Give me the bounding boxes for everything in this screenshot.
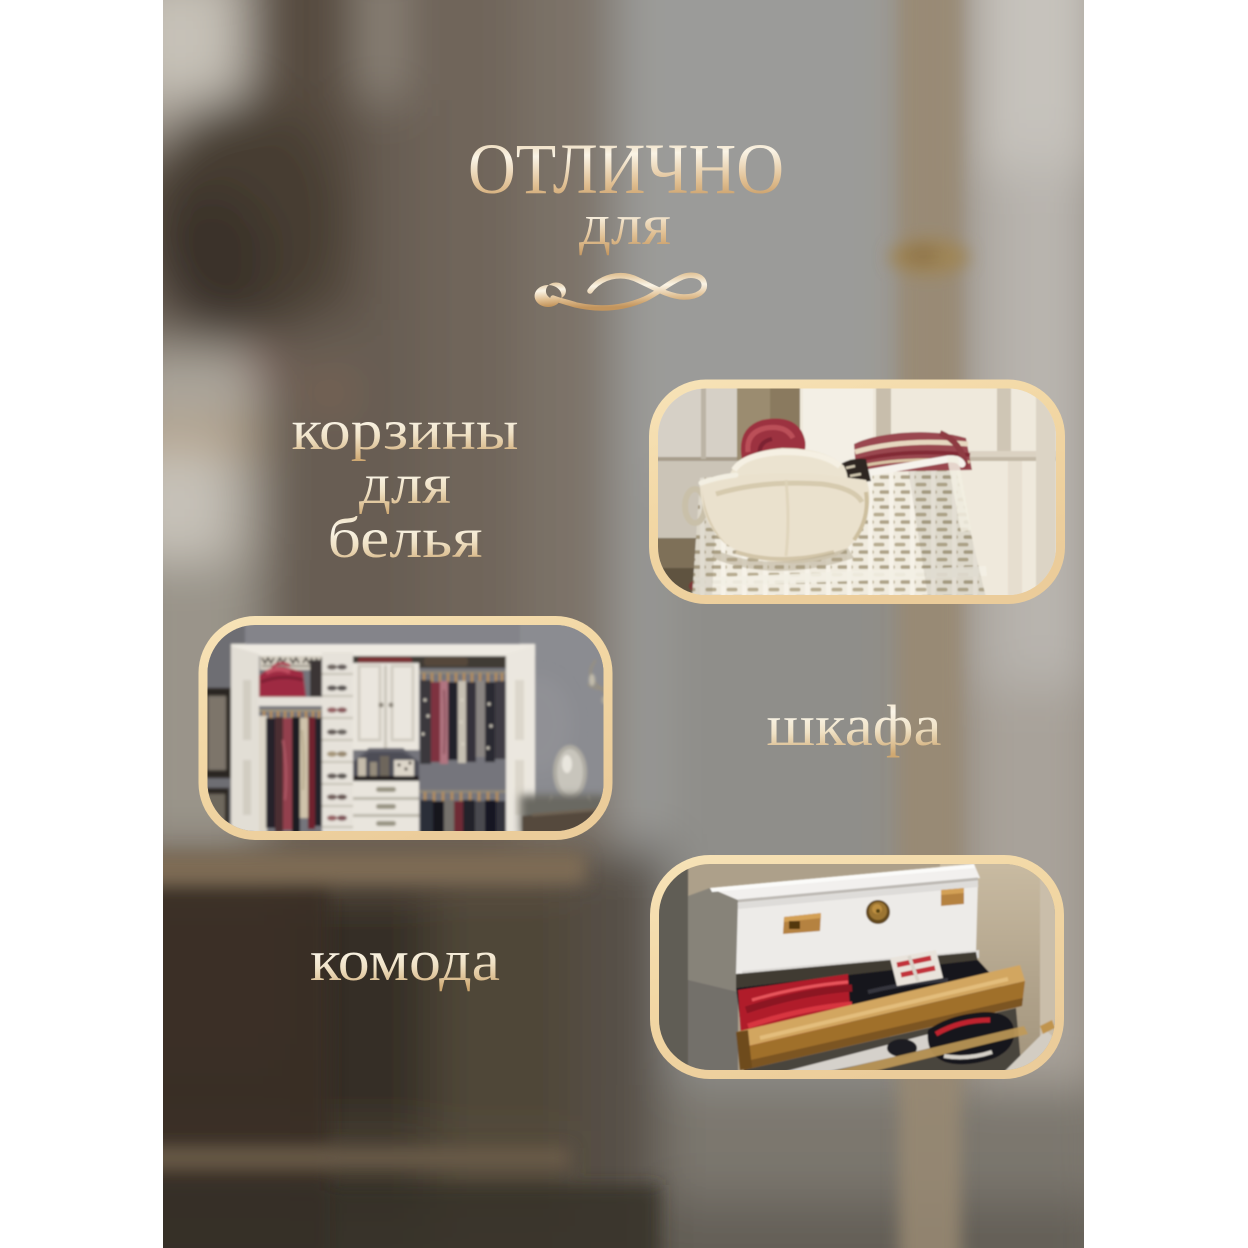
svg-text:белья: белья xyxy=(328,507,483,570)
svg-text:для: для xyxy=(579,192,671,257)
svg-text:шкафа: шкафа xyxy=(767,693,942,758)
svg-text:комода: комода xyxy=(310,928,500,993)
